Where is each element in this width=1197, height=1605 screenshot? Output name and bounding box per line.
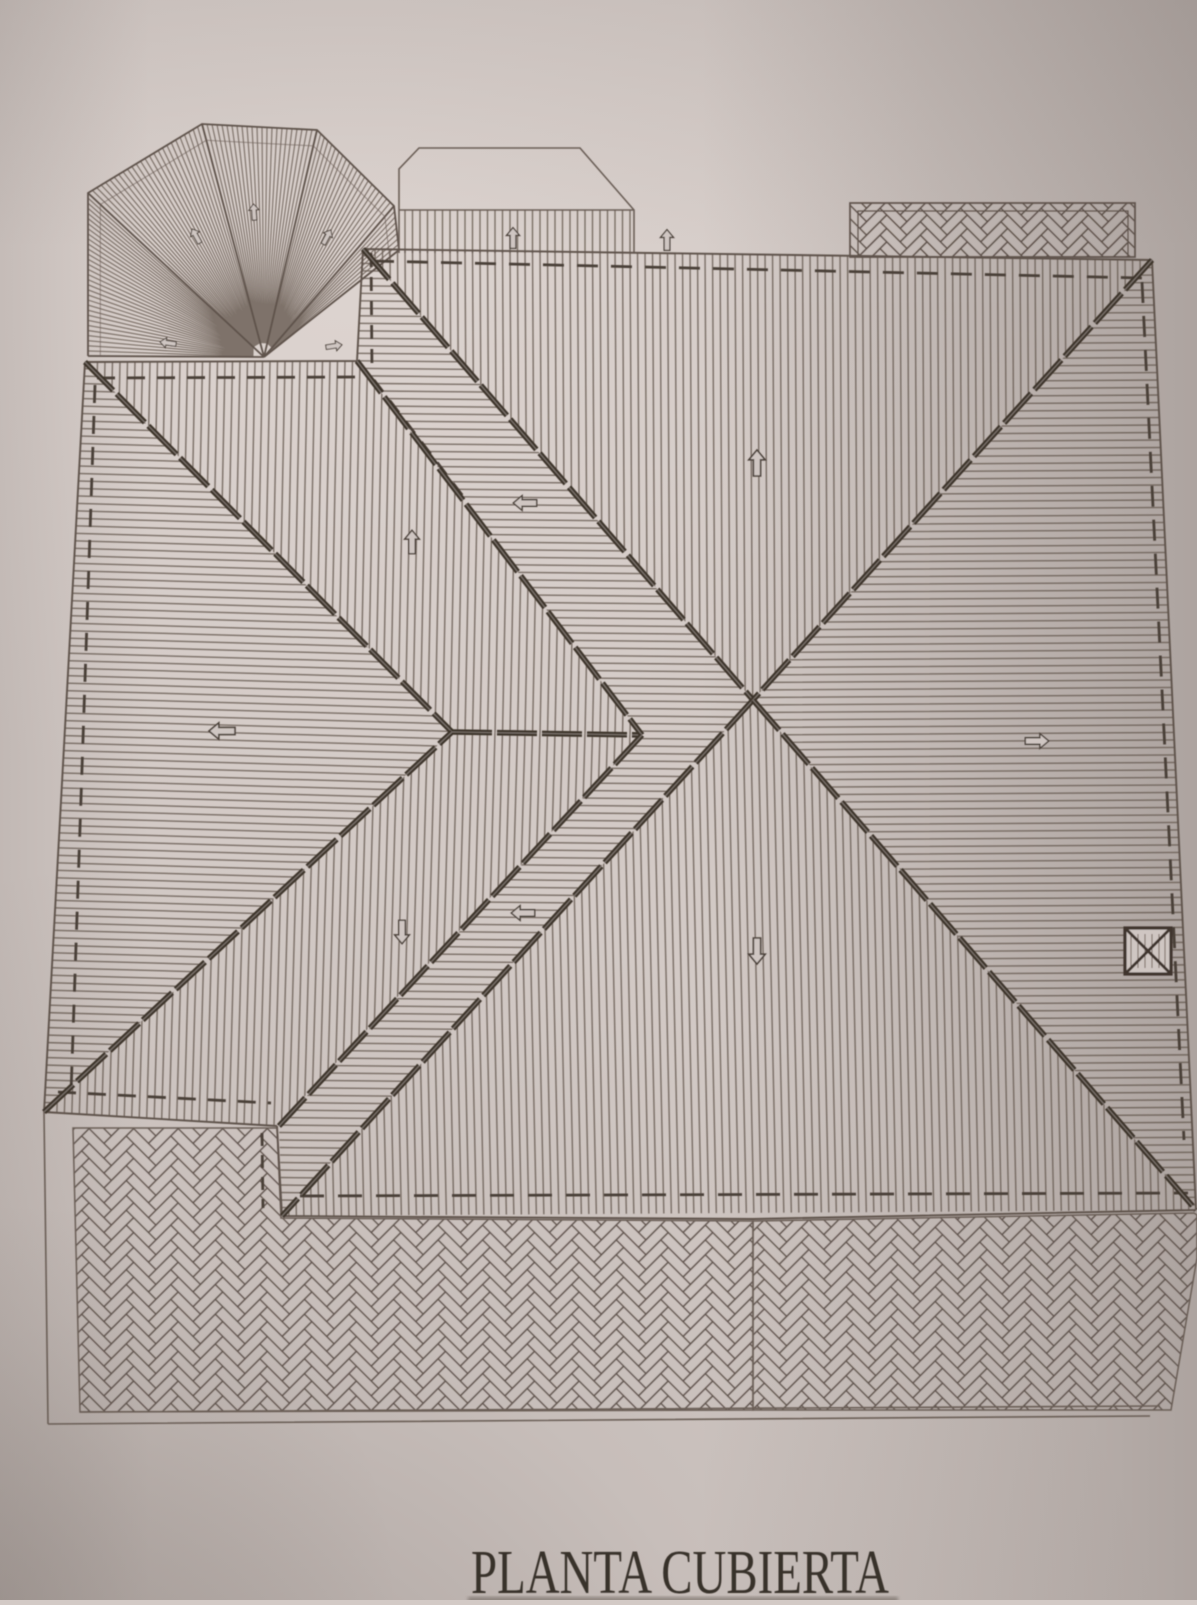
svg-text:PLANTA CUBIERTA: PLANTA CUBIERTA	[471, 1539, 889, 1600]
